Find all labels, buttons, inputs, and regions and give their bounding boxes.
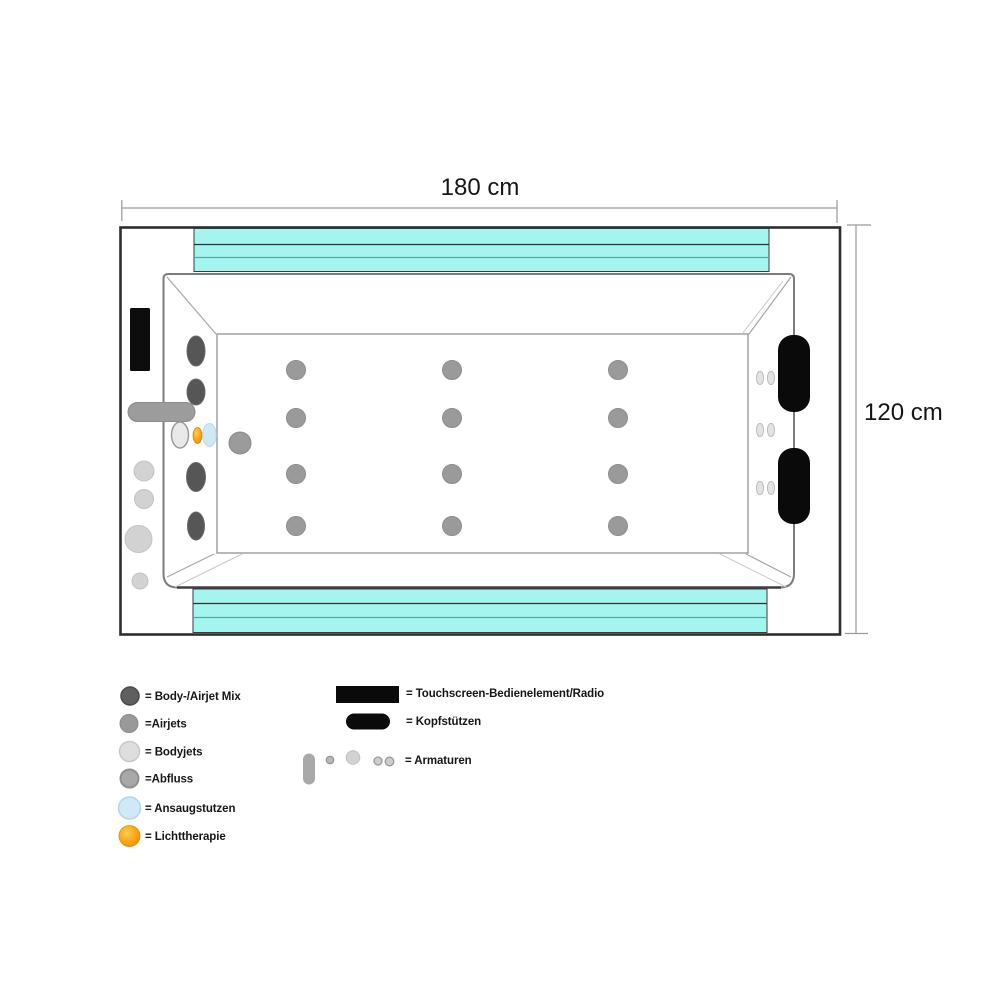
mixjet (187, 336, 205, 366)
lichttherapie (193, 428, 202, 444)
airjet (443, 361, 462, 380)
legend-lichttherapie-icon (119, 826, 140, 847)
legend-abfluss-icon (121, 770, 139, 788)
walljet (756, 481, 763, 494)
legend-armatur-dot-ring1-icon (374, 757, 382, 765)
legend-ansaugstutzen-icon (119, 797, 141, 819)
airjet (287, 409, 306, 428)
width-dimension-label: 180 cm (441, 174, 520, 201)
armatur (135, 490, 154, 509)
legend-armatur-handle-icon (303, 754, 315, 785)
width-dimension: 180 cm (122, 174, 837, 223)
headrest (778, 448, 810, 524)
height-dimension: 120 cm (845, 225, 943, 634)
walljet (767, 481, 774, 494)
armatur (132, 573, 148, 589)
legend-touchscreen-label: = Touchscreen-Bedienelement/Radio (406, 688, 604, 700)
walljet (756, 371, 763, 384)
legend-body-airjet-mix-icon (121, 687, 139, 705)
airjet (443, 517, 462, 536)
walljet (756, 423, 763, 436)
headrest (778, 335, 810, 412)
legend-kopfstuetzen-label: = Kopfstützen (406, 716, 481, 728)
legend-armatur-dot-large-icon (346, 751, 360, 765)
bottom-trim-band (193, 589, 767, 633)
legend-armaturen-label: = Armaturen (405, 755, 472, 767)
airjet (287, 517, 306, 536)
top-trim-band (194, 229, 769, 272)
legend-airjets-label: =Airjets (145, 719, 187, 731)
airjet (609, 465, 628, 484)
touchscreen (130, 308, 150, 371)
legend: = Body-/Airjet Mix =Airjets = Bodyjets =… (119, 686, 605, 847)
airjet (609, 361, 628, 380)
top-trim-band-fill (194, 229, 769, 272)
height-dimension-label: 120 cm (864, 399, 943, 426)
mixjet (187, 379, 205, 405)
legend-armatur-dot-ring2-icon (385, 757, 394, 766)
walljet (767, 423, 774, 436)
bottom-trim-band-fill (193, 589, 767, 633)
airjet (287, 361, 306, 380)
legend-bodyjets-label: = Bodyjets (145, 747, 202, 759)
legend-armatur-dot-small-icon (326, 756, 333, 763)
armatur (134, 461, 154, 481)
airjet (609, 517, 628, 536)
legend-ansaugstutzen-label: = Ansaugstutzen (145, 803, 235, 815)
legend-bodyjets-icon (120, 742, 140, 762)
legend-abfluss-label: =Abfluss (145, 774, 193, 786)
legend-touchscreen-icon (336, 686, 399, 703)
legend-body-airjet-mix-label: = Body-/Airjet Mix (145, 691, 241, 703)
mixjet (188, 512, 205, 540)
airjet (443, 409, 462, 428)
legend-airjets-icon (120, 715, 138, 733)
mixjet (187, 463, 206, 492)
legend-armaturen-icons (303, 751, 394, 785)
bathtub-spec-diagram: 180 cm 120 cm = Body-/Air (0, 0, 1000, 1000)
airjet (287, 465, 306, 484)
walljet (767, 371, 774, 384)
airjet (443, 465, 462, 484)
armatur-handle (128, 403, 195, 422)
armatur (125, 526, 152, 553)
abfluss (229, 432, 251, 454)
ansaugstutzen (203, 424, 217, 447)
airjet (609, 409, 628, 428)
legend-lichttherapie-label: = Lichttherapie (145, 831, 226, 843)
bodyjet (172, 422, 189, 448)
legend-kopfstuetzen-icon (346, 714, 390, 730)
